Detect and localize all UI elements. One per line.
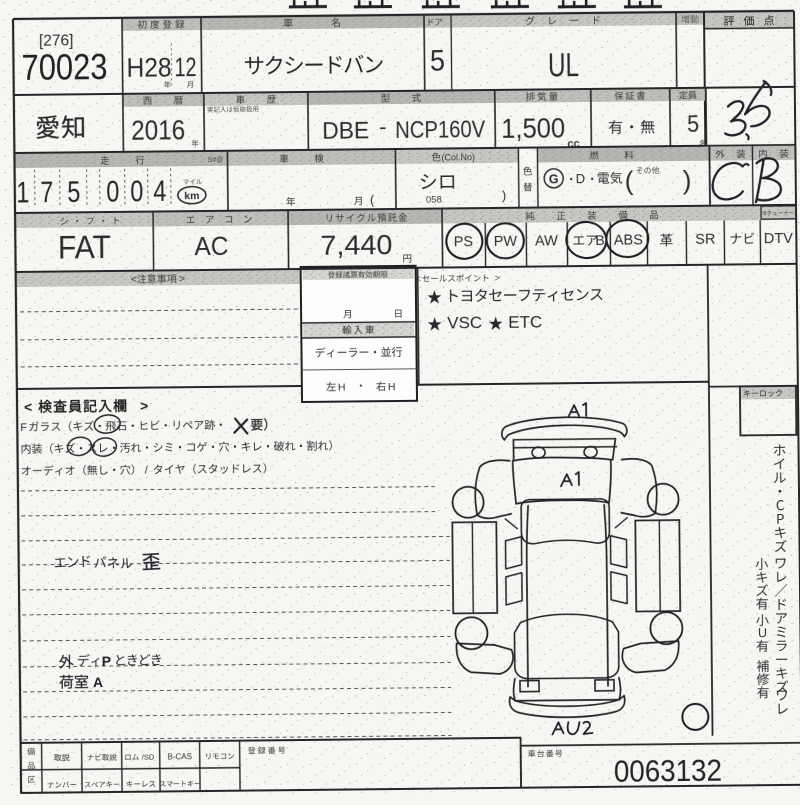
svg-text:S#@: S#@	[208, 157, 224, 164]
svg-text:G: G	[549, 172, 559, 186]
svg-text:12: 12	[174, 52, 196, 82]
svg-text:U: U	[758, 626, 767, 640]
svg-text:km: km	[184, 190, 199, 202]
svg-text:H: H	[388, 381, 396, 393]
svg-text:P: P	[102, 653, 112, 669]
svg-text:5: 5	[67, 176, 80, 209]
svg-text:VSC: VSC	[447, 313, 482, 332]
svg-text:F: F	[20, 422, 27, 434]
svg-text:4: 4	[153, 175, 166, 208]
svg-text:H28: H28	[126, 52, 171, 82]
svg-text:1,500: 1,500	[501, 112, 565, 144]
svg-text:): )	[683, 165, 692, 195]
svg-text:B-CAS: B-CAS	[167, 752, 192, 761]
svg-text:>: >	[179, 273, 186, 285]
svg-text:1: 1	[16, 176, 29, 209]
svg-text:AW: AW	[535, 233, 558, 249]
svg-text:(: (	[625, 166, 634, 196]
svg-text:7,440: 7,440	[320, 229, 392, 261]
svg-text:UL: UL	[548, 46, 579, 83]
svg-text:NCP160V: NCP160V	[395, 116, 485, 144]
svg-text:D: D	[576, 171, 586, 186]
svg-text:DTV: DTV	[764, 231, 793, 247]
svg-text:2016: 2016	[131, 114, 185, 146]
svg-text:AC: AC	[194, 231, 228, 261]
svg-text:PS: PS	[454, 234, 474, 250]
svg-text:0: 0	[106, 175, 119, 208]
svg-text:5: 5	[430, 44, 445, 77]
svg-text:A: A	[93, 674, 103, 690]
svg-text:>: >	[140, 398, 148, 414]
svg-text:<: <	[24, 399, 32, 415]
svg-text:(: (	[370, 192, 375, 207]
svg-text:0063132: 0063132	[614, 753, 722, 789]
svg-text:5: 5	[687, 111, 699, 138]
svg-text:/SD: /SD	[142, 753, 155, 762]
svg-text:70023: 70023	[21, 46, 107, 88]
svg-text:<: <	[131, 274, 138, 286]
svg-text:ABS: ABS	[614, 232, 643, 248]
svg-text:FAT: FAT	[58, 229, 111, 266]
svg-text:): )	[502, 188, 507, 203]
svg-text:058: 058	[426, 195, 442, 206]
svg-text:H: H	[338, 382, 346, 394]
svg-text:>: >	[495, 273, 500, 283]
svg-text:(Col.No): (Col.No)	[441, 152, 475, 162]
svg-text:SR: SR	[695, 232, 715, 248]
svg-text:7: 7	[40, 176, 53, 209]
svg-text:ETC: ETC	[508, 312, 542, 331]
svg-text:B: B	[595, 232, 605, 248]
svg-text:-: -	[379, 114, 387, 139]
svg-text:DBE: DBE	[322, 117, 369, 144]
svg-text:PW: PW	[494, 234, 518, 250]
svg-text:0: 0	[130, 175, 143, 208]
